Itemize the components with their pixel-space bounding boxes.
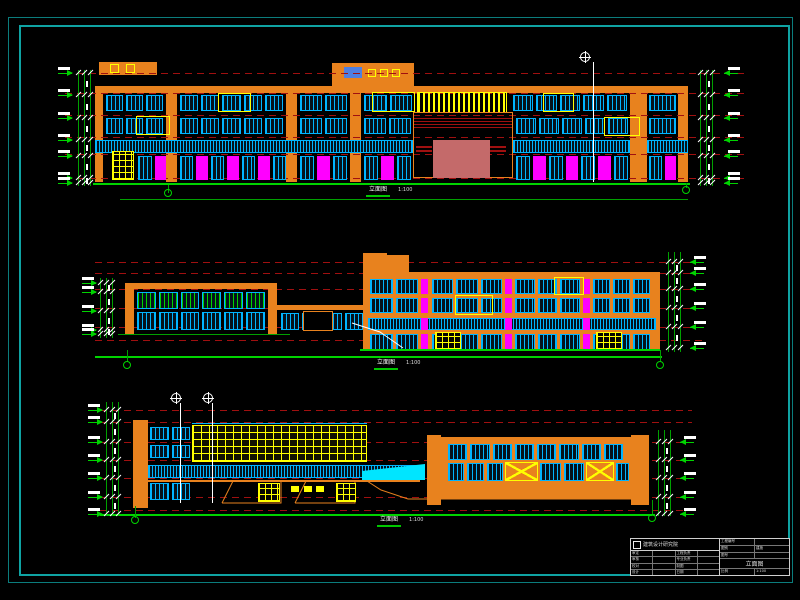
level-value-text bbox=[88, 416, 100, 419]
window bbox=[242, 156, 255, 180]
company-logo-icon bbox=[633, 541, 641, 549]
window bbox=[364, 118, 386, 134]
grid-bubble-icon bbox=[164, 189, 172, 197]
window bbox=[614, 156, 628, 180]
window bbox=[146, 95, 163, 111]
grid-bubble-icon bbox=[131, 516, 139, 524]
level-value-text bbox=[58, 112, 70, 115]
tb-cell: 制图 bbox=[676, 564, 698, 569]
dimension-value-text bbox=[666, 503, 668, 509]
wall-rect bbox=[604, 117, 640, 136]
window bbox=[325, 95, 347, 111]
level-dashed-line bbox=[100, 410, 692, 411]
door-panel bbox=[227, 156, 238, 180]
elevation-1-label: 立面图1:100 bbox=[366, 187, 412, 197]
level-value-text bbox=[694, 267, 706, 270]
window-row bbox=[137, 292, 265, 309]
wall-rect bbox=[286, 86, 297, 182]
level-value-text bbox=[82, 277, 94, 280]
window bbox=[516, 156, 530, 180]
window bbox=[538, 334, 558, 350]
axis-marker-cross-v bbox=[585, 51, 586, 63]
dimension-value-text bbox=[708, 81, 710, 87]
window bbox=[456, 279, 477, 294]
tb-cell: 工程负责 bbox=[676, 551, 698, 556]
window bbox=[537, 444, 556, 460]
level-marker-icon bbox=[724, 180, 730, 186]
dimension-line bbox=[712, 70, 713, 186]
line bbox=[192, 423, 367, 424]
polyline-shape bbox=[365, 479, 650, 501]
level-value-text bbox=[58, 134, 70, 137]
dimension-value-text bbox=[114, 429, 116, 435]
wall-rect bbox=[133, 420, 148, 508]
level-marker-icon bbox=[680, 494, 686, 500]
grid-bubble-icon bbox=[682, 186, 690, 194]
tb-cell bbox=[653, 557, 675, 562]
wall-rect bbox=[433, 140, 490, 178]
detail-mark bbox=[583, 279, 590, 294]
level-value-text bbox=[82, 305, 94, 308]
window bbox=[538, 298, 558, 313]
level-value-text bbox=[728, 177, 740, 180]
axis-marker-icon bbox=[580, 52, 590, 62]
window bbox=[325, 118, 347, 134]
window bbox=[613, 298, 630, 313]
grid-bubble-icon bbox=[123, 361, 131, 369]
wall-rect bbox=[126, 64, 135, 73]
tb-cell: 1:100 bbox=[755, 569, 789, 575]
line bbox=[593, 62, 594, 182]
tb-cell bbox=[653, 570, 675, 575]
polyline-shape bbox=[350, 321, 405, 350]
line bbox=[100, 514, 655, 516]
level-value-text bbox=[694, 256, 706, 259]
title-block-row: 图别建施 bbox=[720, 546, 789, 553]
elevation-1-title: 立面图 bbox=[366, 187, 390, 197]
window bbox=[604, 444, 623, 460]
window bbox=[159, 312, 178, 330]
elevation-3-title: 立面图 bbox=[377, 517, 401, 527]
tb-cell bbox=[653, 551, 675, 556]
wall-rect bbox=[218, 93, 251, 112]
window bbox=[549, 156, 563, 180]
door-panel bbox=[155, 156, 167, 180]
tb-cell: 日期 bbox=[676, 570, 698, 575]
tb-cell: 工程编号 bbox=[720, 539, 755, 545]
level-marker-icon bbox=[97, 457, 103, 463]
detail-mark bbox=[505, 298, 512, 313]
window bbox=[633, 334, 650, 350]
window bbox=[273, 156, 286, 180]
window bbox=[202, 292, 221, 309]
level-value-text bbox=[58, 67, 70, 70]
level-marker-icon bbox=[91, 331, 97, 337]
hatch-band bbox=[414, 118, 512, 128]
dimension-value-text bbox=[108, 299, 110, 305]
window-row bbox=[106, 95, 163, 111]
window-door-row bbox=[300, 156, 347, 180]
level-marker-icon bbox=[724, 92, 730, 98]
axis-marker-icon bbox=[171, 393, 181, 403]
dimension-line bbox=[680, 252, 681, 352]
level-marker-icon bbox=[67, 137, 73, 143]
window bbox=[649, 118, 676, 134]
tb-cell: 审定 bbox=[631, 551, 653, 556]
door-panel bbox=[317, 156, 329, 180]
level-marker-icon bbox=[97, 511, 103, 517]
window bbox=[244, 118, 262, 134]
window-row bbox=[150, 445, 190, 458]
window bbox=[389, 118, 411, 134]
window bbox=[333, 156, 347, 180]
dimension-value-text bbox=[114, 448, 116, 454]
wall-rect bbox=[455, 295, 493, 315]
title-block-row: 比例1:100 bbox=[720, 569, 789, 575]
level-marker-icon bbox=[690, 270, 696, 276]
window-row bbox=[180, 118, 283, 134]
detail-mark bbox=[421, 334, 428, 350]
title-block-row: 设计日期 bbox=[631, 570, 719, 575]
window-ribbon bbox=[647, 140, 688, 153]
tb-cell bbox=[698, 570, 719, 575]
window bbox=[515, 444, 534, 460]
level-value-text bbox=[728, 112, 740, 115]
window bbox=[633, 279, 650, 294]
tb-cell: 校对 bbox=[631, 564, 653, 569]
window-row bbox=[300, 118, 347, 134]
title-block-row: 工程编号 bbox=[720, 539, 789, 546]
level-value-text bbox=[694, 342, 706, 345]
level-value-text bbox=[684, 454, 696, 457]
window-row bbox=[150, 427, 190, 440]
detail-mark bbox=[416, 146, 432, 148]
window bbox=[222, 118, 240, 134]
window bbox=[370, 298, 393, 313]
tb-cell bbox=[755, 539, 789, 545]
elevation-2-scale: 1:100 bbox=[406, 360, 420, 366]
dimension-value-text bbox=[676, 335, 678, 341]
window bbox=[201, 95, 219, 111]
wall-rect bbox=[95, 86, 103, 182]
entrance-door bbox=[336, 483, 356, 502]
level-marker-icon bbox=[91, 308, 97, 314]
title-block: 建筑设计研究院 审定工程负责 审核专业负责 校对制图 设计日期 工程编号 图别建… bbox=[630, 538, 790, 576]
line bbox=[95, 356, 662, 358]
window bbox=[633, 298, 650, 313]
level-value-text bbox=[58, 89, 70, 92]
level-value-text bbox=[88, 472, 100, 475]
dimension-value-text bbox=[676, 296, 678, 302]
window bbox=[448, 444, 467, 460]
window-row bbox=[593, 279, 650, 294]
level-value-text bbox=[58, 172, 70, 175]
detail-mark bbox=[291, 486, 299, 492]
window bbox=[224, 292, 243, 309]
door-panel bbox=[258, 156, 269, 180]
level-value-text bbox=[58, 150, 70, 153]
entrance-door bbox=[435, 332, 461, 350]
window bbox=[481, 334, 502, 350]
level-marker-icon bbox=[97, 494, 103, 500]
tb-cell: 图别 bbox=[720, 546, 755, 552]
door-panel bbox=[566, 156, 578, 180]
louver-band bbox=[417, 92, 507, 113]
window bbox=[515, 334, 535, 350]
line bbox=[120, 199, 688, 200]
level-marker-icon bbox=[67, 115, 73, 121]
dimension-value-text bbox=[666, 485, 668, 491]
company-name: 建筑设计研究院 bbox=[643, 541, 678, 548]
window-row bbox=[649, 95, 676, 111]
window bbox=[265, 118, 283, 134]
window-ribbon bbox=[513, 140, 630, 153]
dimension-line bbox=[658, 430, 659, 516]
dimension-value-text bbox=[708, 104, 710, 110]
elevation-1-scale: 1:100 bbox=[398, 187, 412, 193]
window-row bbox=[593, 298, 650, 313]
level-dashed-line bbox=[100, 510, 692, 511]
window bbox=[159, 292, 178, 309]
window-ribbon bbox=[368, 318, 656, 330]
window-row bbox=[370, 279, 418, 294]
level-marker-icon bbox=[67, 180, 73, 186]
level-marker-icon bbox=[680, 511, 686, 517]
window bbox=[582, 444, 601, 460]
title-block-row: 图号 bbox=[720, 553, 789, 560]
dimension-line bbox=[78, 70, 79, 186]
window bbox=[585, 118, 605, 134]
detail-mark bbox=[583, 318, 590, 330]
wall-rect bbox=[277, 305, 365, 310]
level-value-text bbox=[728, 134, 740, 137]
dimension-value-text bbox=[86, 145, 88, 151]
level-value-text bbox=[82, 328, 94, 331]
window-row bbox=[515, 298, 580, 313]
dimension-value-text bbox=[666, 448, 668, 454]
dimension-line bbox=[668, 252, 669, 352]
detail-mark bbox=[490, 146, 506, 148]
level-marker-icon bbox=[724, 153, 730, 159]
window-row bbox=[150, 483, 190, 500]
tb-cell: 图号 bbox=[720, 553, 755, 559]
level-marker-icon bbox=[690, 345, 696, 351]
level-marker-icon bbox=[690, 259, 696, 265]
window bbox=[516, 118, 536, 134]
line bbox=[118, 334, 290, 335]
dimension-line bbox=[706, 70, 707, 186]
door-panel bbox=[381, 156, 393, 180]
title-block-company-row: 建筑设计研究院 bbox=[631, 539, 719, 551]
detail-mark bbox=[583, 334, 590, 350]
window bbox=[137, 292, 156, 309]
detail-mark bbox=[490, 150, 506, 152]
window-row bbox=[448, 444, 623, 460]
window bbox=[150, 427, 169, 440]
level-value-text bbox=[82, 324, 94, 327]
window bbox=[106, 118, 123, 134]
level-marker-icon bbox=[97, 439, 103, 445]
wall-rect bbox=[303, 311, 333, 331]
level-dashed-line bbox=[100, 422, 692, 423]
window bbox=[126, 95, 143, 111]
window bbox=[560, 298, 580, 313]
window bbox=[607, 95, 627, 111]
window bbox=[150, 483, 169, 500]
axis-marker-icon bbox=[203, 393, 213, 403]
elevation-2-label: 立面图1:100 bbox=[374, 360, 420, 370]
level-marker-icon bbox=[680, 457, 686, 463]
window bbox=[181, 292, 200, 309]
dimension-value-text bbox=[86, 164, 88, 170]
window-ribbon bbox=[95, 140, 413, 153]
tb-cell bbox=[698, 551, 719, 556]
level-value-text bbox=[82, 286, 94, 289]
wall-rect bbox=[678, 86, 688, 182]
window bbox=[364, 156, 378, 180]
window bbox=[246, 312, 265, 330]
detail-mark bbox=[583, 298, 590, 313]
dimension-value-text bbox=[708, 145, 710, 151]
window bbox=[265, 95, 283, 111]
detail-mark bbox=[505, 318, 512, 330]
window bbox=[559, 444, 578, 460]
window bbox=[613, 279, 630, 294]
level-value-text bbox=[728, 172, 740, 175]
window bbox=[201, 118, 219, 134]
elevation-2-title: 立面图 bbox=[374, 360, 398, 370]
level-marker-icon bbox=[91, 289, 97, 295]
dimension-value-text bbox=[666, 466, 668, 472]
window-door-row bbox=[364, 156, 411, 180]
wall-rect bbox=[554, 277, 584, 295]
level-marker-icon bbox=[97, 419, 103, 425]
window bbox=[432, 298, 453, 313]
wall-rect bbox=[268, 283, 277, 335]
level-marker-icon bbox=[97, 475, 103, 481]
tb-cell bbox=[698, 557, 719, 562]
level-marker-icon bbox=[724, 70, 730, 76]
window bbox=[246, 292, 265, 309]
dimension-value-text bbox=[108, 318, 110, 324]
line bbox=[93, 183, 690, 185]
dimension-value-text bbox=[708, 126, 710, 132]
window bbox=[370, 279, 393, 294]
grid-bubble-icon bbox=[656, 361, 664, 369]
window-door-row bbox=[180, 156, 286, 180]
level-marker-icon bbox=[724, 115, 730, 121]
tb-cell: 审核 bbox=[631, 557, 653, 562]
tb-cell: 建施 bbox=[755, 546, 789, 552]
cad-drawing-canvas[interactable]: 立面图1:100 立面图1:100 立面图1:100 建筑设计研究院 审定工程负… bbox=[0, 0, 800, 600]
window bbox=[396, 279, 419, 294]
detail-mark bbox=[421, 279, 428, 294]
dimension-line bbox=[664, 430, 665, 516]
detail-mark bbox=[304, 486, 312, 492]
window bbox=[180, 95, 198, 111]
window bbox=[180, 118, 198, 134]
window bbox=[106, 95, 123, 111]
window bbox=[539, 118, 559, 134]
level-value-text bbox=[728, 150, 740, 153]
detail-mark bbox=[316, 486, 324, 492]
entrance-door bbox=[596, 332, 622, 350]
level-value-text bbox=[88, 436, 100, 439]
dimension-line bbox=[674, 252, 675, 352]
level-value-text bbox=[728, 89, 740, 92]
window-door-row bbox=[649, 156, 676, 180]
tb-cell bbox=[653, 564, 675, 569]
window bbox=[562, 118, 582, 134]
tb-cell bbox=[755, 553, 789, 559]
line bbox=[180, 403, 181, 503]
window-door-row bbox=[138, 156, 166, 180]
level-value-text bbox=[694, 321, 706, 324]
wall-rect bbox=[110, 64, 119, 73]
window-row bbox=[364, 118, 411, 134]
level-marker-icon bbox=[67, 92, 73, 98]
dimension-value-text bbox=[114, 466, 116, 472]
level-value-text bbox=[694, 283, 706, 286]
window bbox=[493, 444, 512, 460]
wall-rect bbox=[125, 283, 277, 289]
window bbox=[137, 312, 156, 330]
elevation-3-label: 立面图1:100 bbox=[377, 517, 423, 527]
level-value-text bbox=[684, 491, 696, 494]
window bbox=[649, 95, 676, 111]
window bbox=[281, 313, 299, 330]
level-value-text bbox=[694, 302, 706, 305]
dimension-value-text bbox=[676, 278, 678, 284]
level-value-text bbox=[684, 508, 696, 511]
dimension-line bbox=[90, 70, 91, 186]
dimension-line bbox=[700, 70, 701, 186]
window bbox=[481, 279, 502, 294]
window bbox=[150, 445, 169, 458]
elevation-3-scale: 1:100 bbox=[409, 517, 423, 523]
window bbox=[138, 156, 152, 180]
window-row bbox=[515, 334, 580, 350]
wall-rect bbox=[363, 255, 409, 273]
level-marker-icon bbox=[690, 324, 696, 330]
door-panel bbox=[533, 156, 545, 180]
level-dashed-line bbox=[65, 73, 745, 74]
level-value-text bbox=[88, 404, 100, 407]
window bbox=[300, 118, 322, 134]
window bbox=[300, 156, 314, 180]
title-block-right: 工程编号 图别建施 图号 立面图 比例1:100 bbox=[720, 539, 789, 575]
door-panel bbox=[196, 156, 207, 180]
level-dashed-line bbox=[65, 137, 745, 138]
level-value-text bbox=[728, 67, 740, 70]
title-block-left: 建筑设计研究院 审定工程负责 审核专业负责 校对制图 设计日期 bbox=[631, 539, 720, 575]
level-value-text bbox=[684, 436, 696, 439]
level-marker-icon bbox=[97, 407, 103, 413]
detail-mark bbox=[505, 279, 512, 294]
dimension-value-text bbox=[86, 126, 88, 132]
tb-cell bbox=[698, 564, 719, 569]
line bbox=[212, 403, 213, 503]
entrance-door bbox=[258, 483, 280, 502]
entrance-door bbox=[112, 151, 134, 180]
axis-marker-cross-v bbox=[176, 392, 177, 404]
level-marker-icon bbox=[67, 153, 73, 159]
detail-mark bbox=[416, 150, 432, 152]
window bbox=[593, 298, 610, 313]
window bbox=[515, 298, 535, 313]
dimension-value-text bbox=[86, 104, 88, 110]
window-row bbox=[370, 298, 418, 313]
